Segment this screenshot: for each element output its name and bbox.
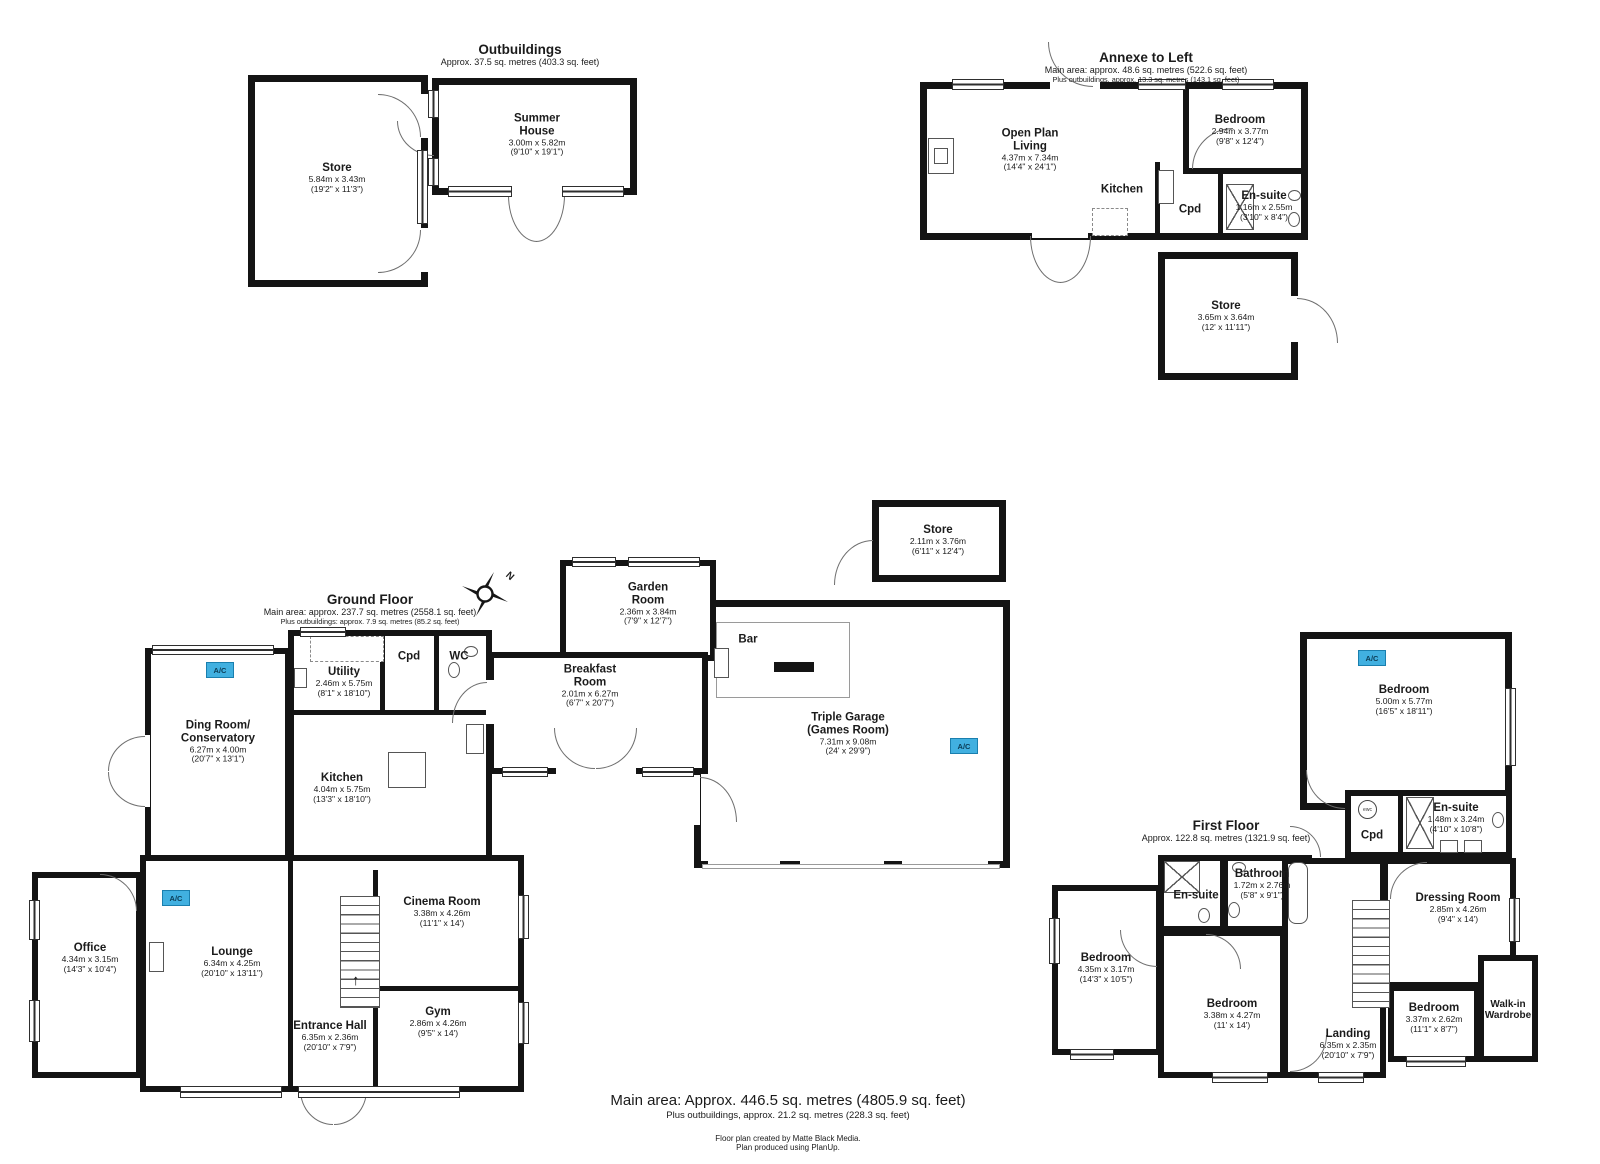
window	[300, 627, 346, 637]
room-dims-imperial: (16'5" x 18'11")	[1349, 706, 1459, 716]
room-name: Office	[40, 942, 140, 955]
plan-title: Annexe to Left	[1045, 50, 1248, 65]
sink-icon	[1440, 840, 1458, 853]
room-label-garage: Triple Garage (Games Room) 7.31m x 9.08m…	[807, 712, 889, 757]
room-dims-imperial: (20'10" x 7'9")	[1303, 1050, 1393, 1060]
window	[518, 1002, 529, 1044]
room-name: Open Plan Living	[994, 128, 1066, 154]
ac-unit-badge: A/C	[1358, 650, 1386, 666]
room-label-ff-bedroom2: Bedroom 3.37m x 2.62m (11'1" x 8'7")	[1389, 1002, 1479, 1034]
room-name: Cpd	[1170, 204, 1210, 217]
window	[428, 90, 439, 118]
footer-credit: Plan produced using PlanUp.	[610, 1143, 965, 1152]
room-label-kitchen: Kitchen 4.04m x 5.75m (13'3" x 18'10")	[287, 772, 397, 804]
appliance-icon	[1092, 208, 1128, 236]
plan-subtitle2: Plus outbuildings, approx. 13.3 sq. metr…	[1045, 75, 1248, 84]
window	[417, 150, 428, 224]
kitchen-sink-icon	[1158, 170, 1174, 204]
room-label-ff-bedroom1: Bedroom 5.00m x 5.77m (16'5" x 18'11")	[1349, 684, 1459, 716]
door-arc	[108, 772, 145, 807]
cylinder-badge: ewc	[1358, 800, 1377, 819]
room-dims-imperial: (9'5" x 14')	[388, 1028, 488, 1038]
room-label-lounge: Lounge 6.34m x 4.25m (20'10" x 13'11")	[177, 946, 287, 978]
garage-door-line	[702, 864, 1000, 869]
room-name: Bedroom	[1349, 684, 1459, 697]
plan-title: Outbuildings	[441, 42, 600, 57]
door-arc	[108, 736, 145, 771]
window	[29, 1000, 40, 1042]
room-name: En-suite	[1408, 802, 1504, 815]
door-opening	[420, 228, 428, 272]
counter-icon	[310, 636, 384, 662]
window	[502, 767, 548, 777]
room-dims-imperial: (13'3" x 18'10")	[287, 794, 397, 804]
room-name: Bedroom	[1056, 952, 1156, 965]
room-label-annexe-kitchen: Kitchen	[1087, 184, 1157, 197]
door-arc	[834, 540, 873, 585]
room-name: Bar	[728, 634, 768, 647]
room-label-annexe-ensuite: En-suite 1.16m x 2.55m (3'10" x 8'4")	[1219, 190, 1309, 222]
bay-window	[1070, 1049, 1114, 1060]
kitchen-sink-icon	[466, 724, 484, 754]
staircase	[1352, 900, 1390, 1008]
room-name: Kitchen	[287, 772, 397, 785]
room-label-annexe-bedroom: Bedroom 2.94m x 3.77m (9'8" x 12'4")	[1185, 114, 1295, 146]
room-dims-imperial: (6'11" x 12'4")	[888, 546, 988, 556]
window	[152, 645, 274, 655]
plan-title: Ground Floor	[264, 592, 477, 607]
room-label-cinema-room: Cinema Room 3.38m x 4.26m (11'1" x 14')	[402, 896, 482, 928]
bar-unit	[774, 662, 814, 672]
room-label-landing: Landing 6.35m x 2.35m (20'10" x 7'9")	[1303, 1028, 1393, 1060]
room-name: WC	[441, 651, 477, 664]
room-dims-imperial: (20'7" x 13'1")	[162, 755, 274, 765]
room-dims-imperial: (8'1" x 18'10")	[294, 688, 394, 698]
room-dims-imperial: (14'4" x 24'1")	[994, 163, 1066, 173]
room-dims-imperial: (9'4" x 14')	[1413, 914, 1503, 924]
first-floor-title-block: First Floor Approx. 122.8 sq. metres (13…	[1142, 818, 1311, 843]
ac-unit-badge: A/C	[206, 662, 234, 678]
room-name: Summer House	[502, 113, 572, 139]
window	[448, 186, 512, 197]
bay-window	[298, 1086, 460, 1098]
room-name: Store	[1171, 300, 1281, 313]
room-label-summer-house: Summer House 3.00m x 5.82m (9'10" x 19'1…	[502, 113, 572, 158]
door-opening	[510, 187, 562, 195]
room-label-garden-room: Garden Room 2.36m x 3.84m (7'9" x 12'7")	[613, 582, 683, 627]
staircase	[340, 896, 380, 1008]
room-dims-imperial: (11'1" x 8'7")	[1389, 1024, 1479, 1034]
room-name: Store	[888, 524, 988, 537]
room-name: Walk-in Wardrobe	[1479, 999, 1537, 1021]
bay-window	[1318, 1072, 1364, 1083]
room-label-ff-bedroom3: Bedroom 3.38m x 4.27m (11' x 14')	[1182, 998, 1282, 1030]
room-name: Garden Room	[613, 582, 683, 608]
wall	[434, 633, 439, 713]
room-label-dining-conservatory: Ding Room/ Conservatory 6.27m x 4.00m (2…	[162, 720, 274, 765]
room-dims-imperial: (24' x 29'9")	[807, 747, 889, 757]
room-name: Kitchen	[1087, 184, 1157, 197]
plan-subtitle: Main area: approx. 48.6 sq. metres (522.…	[1045, 65, 1248, 75]
room-label-ff-cpd: Cpd	[1352, 830, 1392, 843]
room-dims-imperial: (12' x 11'11")	[1171, 322, 1281, 332]
wall	[288, 858, 293, 1089]
footer-area-summary: Main area: Approx. 446.5 sq. metres (480…	[610, 1092, 965, 1152]
room-label-annexe-store: Store 3.65m x 3.64m (12' x 11'11")	[1171, 300, 1281, 332]
room-label-wc: WC	[441, 651, 477, 664]
room-name: Utility	[294, 666, 394, 679]
room-name: Gym	[388, 1006, 488, 1019]
stairs-up-arrow: ↑	[352, 972, 360, 989]
window	[952, 79, 1004, 90]
window	[29, 900, 40, 940]
room-dims-imperial: (6'7" x 20'7")	[551, 699, 629, 709]
room-name: Bedroom	[1389, 1002, 1479, 1015]
plan-subtitle2: Plus outbuildings: approx. 7.9 sq. metre…	[264, 617, 477, 626]
window	[572, 557, 616, 567]
room-name: Cinema Room	[402, 896, 482, 909]
door-arc	[1030, 236, 1061, 283]
room-name: Lounge	[177, 946, 287, 959]
room-dims-imperial: (20'10" x 13'11")	[177, 968, 287, 978]
ac-unit-badge: A/C	[162, 890, 190, 906]
room-name: Ding Room/ Conservatory	[162, 720, 274, 746]
room-name: Bedroom	[1185, 114, 1295, 127]
wall	[376, 986, 521, 991]
room-label-utility: Utility 2.46m x 5.75m (8'1" x 18'10")	[294, 666, 394, 698]
door-opening	[486, 680, 495, 724]
room-name: Landing	[1303, 1028, 1393, 1041]
room-name: Store	[277, 162, 397, 175]
plan-subtitle: Approx. 122.8 sq. metres (1321.9 sq. fee…	[1142, 833, 1311, 843]
footer-main-area: Main area: Approx. 446.5 sq. metres (480…	[610, 1092, 965, 1109]
room-dims-imperial: (14'3" x 10'4")	[40, 964, 140, 974]
room-name: Bathroom	[1216, 868, 1308, 881]
room-name: Bedroom	[1182, 998, 1282, 1011]
bar-sink-icon	[714, 648, 729, 678]
room-dims-imperial: (5'8" x 9'1")	[1216, 890, 1308, 900]
window	[1505, 688, 1516, 766]
room-name: Cpd	[1352, 830, 1392, 843]
room-label-entrance-hall: Entrance Hall 6.35m x 2.36m (20'10" x 7'…	[289, 1020, 371, 1052]
room-label-open-plan-living: Open Plan Living 4.37m x 7.34m (14'4" x …	[994, 128, 1066, 173]
plan-subtitle: Main area: approx. 237.7 sq. metres (255…	[264, 607, 477, 617]
room-dims-imperial: (9'10" x 19'1")	[502, 148, 572, 158]
bay-window	[180, 1086, 282, 1098]
kitchen-block-outline	[288, 630, 492, 862]
room-dims-imperial: (19'2" x 11'3")	[277, 184, 397, 194]
toilet-icon	[1198, 908, 1210, 923]
door-opening	[691, 775, 700, 825]
outbuildings-title-block: Outbuildings Approx. 37.5 sq. metres (40…	[441, 42, 600, 67]
ground-floor-title-block: Ground Floor Main area: approx. 237.7 sq…	[264, 592, 477, 626]
room-label-ff-ensuite: En-suite 1.48m x 3.24m (4'10" x 10'8")	[1408, 802, 1504, 834]
room-name: Breakfast Room	[551, 664, 629, 690]
room-label-office: Office 4.34m x 3.15m (14'3" x 10'4")	[40, 942, 140, 974]
room-label-breakfast-room: Breakfast Room 2.01m x 6.27m (6'7" x 20'…	[551, 664, 629, 709]
window	[628, 557, 700, 567]
bay-window	[1406, 1056, 1466, 1067]
window	[1509, 898, 1520, 942]
room-dims-imperial: (14'3" x 10'5")	[1056, 974, 1156, 984]
window	[428, 158, 439, 186]
room-dims-imperial: (20'10" x 7'9")	[289, 1042, 371, 1052]
door-arc	[536, 195, 565, 242]
floor-plan-page: Outbuildings Approx. 37.5 sq. metres (40…	[0, 0, 1600, 1164]
plan-title: First Floor	[1142, 818, 1311, 833]
room-label-annexe-cpd: Cpd	[1170, 204, 1210, 217]
room-label-ff-bedroom4: Bedroom 4.35m x 3.17m (14'3" x 10'5")	[1056, 952, 1156, 984]
room-label-walkin-wardrobe: Walk-in Wardrobe	[1479, 999, 1537, 1021]
footer-outbuildings: Plus outbuildings, approx. 21.2 sq. metr…	[610, 1110, 965, 1121]
room-dims-imperial: (3'10" x 8'4")	[1219, 212, 1309, 222]
sink-icon	[1464, 840, 1482, 853]
toilet-icon	[448, 662, 460, 678]
annexe-title-block: Annexe to Left Main area: approx. 48.6 s…	[1045, 50, 1248, 84]
fireplace-icon	[934, 148, 948, 164]
room-dims-imperial: (7'9" x 12'7")	[613, 617, 683, 627]
room-name: Dressing Room	[1413, 892, 1503, 905]
room-name: En-suite	[1219, 190, 1309, 203]
shower-icon	[1164, 861, 1200, 893]
room-label-store: Store 5.84m x 3.43m (19'2" x 11'3")	[277, 162, 397, 194]
room-dims-imperial: (11'1" x 14')	[402, 918, 482, 928]
room-label-cpd: Cpd	[389, 651, 429, 664]
room-label-gym: Gym 2.86m x 4.26m (9'5" x 14')	[388, 1006, 488, 1038]
door-arc	[508, 195, 537, 242]
room-dims-imperial: (4'10" x 10'8")	[1408, 824, 1504, 834]
bay-window	[1212, 1072, 1268, 1083]
room-name: Triple Garage (Games Room)	[807, 712, 889, 738]
door-arc	[1060, 236, 1091, 283]
room-label-gf-store: Store 2.11m x 3.76m (6'11" x 12'4")	[888, 524, 988, 556]
room-name: Entrance Hall	[289, 1020, 371, 1033]
room-label-bar: Bar	[728, 634, 768, 647]
fireplace-icon	[149, 942, 164, 972]
ac-unit-badge: A/C	[950, 738, 978, 754]
window	[642, 767, 694, 777]
door-arc	[1297, 298, 1338, 343]
room-label-dressing-room: Dressing Room 2.85m x 4.26m (9'4" x 14')	[1413, 892, 1503, 924]
toilet-icon	[1228, 902, 1240, 918]
window	[518, 895, 529, 939]
wall	[1398, 793, 1403, 855]
room-name: Cpd	[389, 651, 429, 664]
window	[562, 186, 624, 197]
room-dims-imperial: (9'8" x 12'4")	[1185, 136, 1295, 146]
room-label-ff-bathroom: Bathroom 1.72m x 2.76m (5'8" x 9'1")	[1216, 868, 1308, 900]
room-dims-imperial: (11' x 14')	[1182, 1020, 1282, 1030]
footer-credit: Floor plan created by Matte Black Media.	[610, 1134, 965, 1143]
plan-subtitle: Approx. 37.5 sq. metres (403.3 sq. feet)	[441, 57, 600, 67]
